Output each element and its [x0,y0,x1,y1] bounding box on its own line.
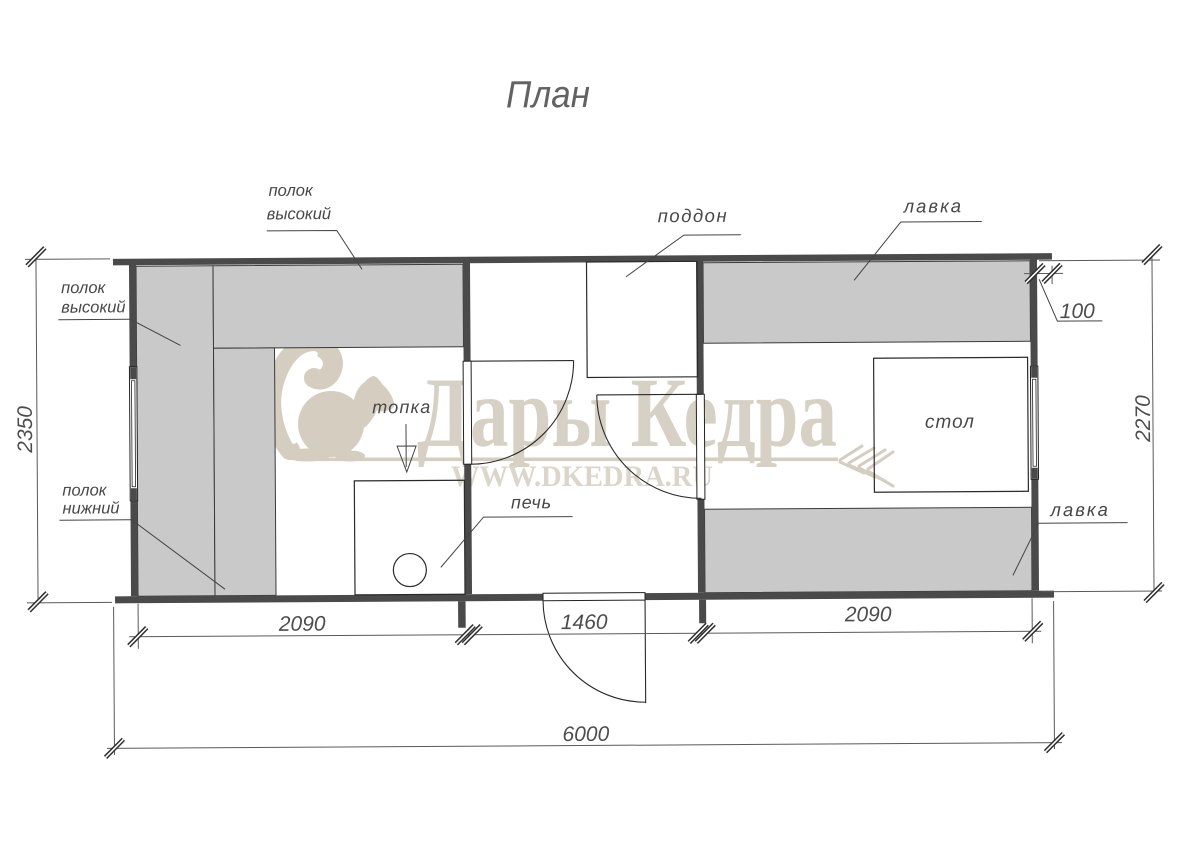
svg-text:2090: 2090 [278,613,326,636]
svg-text:лавка: лавка [903,195,964,216]
svg-text:2090: 2090 [844,603,892,626]
svg-text:нижний: нижний [62,499,119,517]
svg-text:печь: печь [511,492,552,512]
svg-text:1460: 1460 [561,611,608,634]
svg-text:полок: полок [268,182,313,200]
svg-text:топка: топка [372,397,431,417]
svg-text:полок: полок [61,279,106,297]
svg-text:100: 100 [1060,300,1095,323]
svg-text:стол: стол [925,412,975,433]
svg-text:2350: 2350 [14,406,37,454]
svg-text:План: План [506,74,590,117]
svg-text:высокий: высокий [267,205,331,223]
svg-text:Дары Кедра: Дары Кедра [417,357,837,468]
svg-text:6000: 6000 [562,723,609,746]
svg-text:поддон: поддон [658,205,729,226]
svg-text:лавка: лавка [1049,499,1110,520]
svg-text:WWW.DKEDRA.RU: WWW.DKEDRA.RU [451,460,713,493]
svg-text:высокий: высокий [61,298,125,316]
svg-text:полок: полок [62,481,107,499]
svg-text:2270: 2270 [1132,395,1155,443]
